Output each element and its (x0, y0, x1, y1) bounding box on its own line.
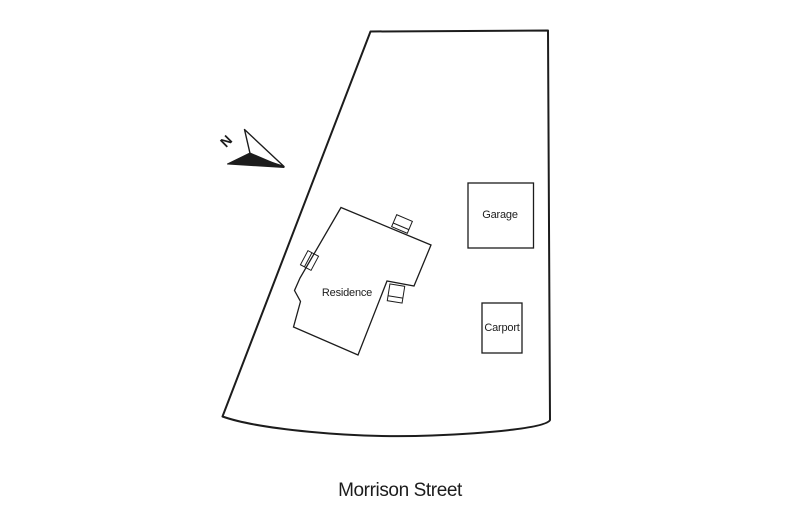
site-plan: N Residence Garage Carport Morrison Stre… (0, 0, 790, 527)
residence-outline (294, 208, 432, 356)
north-arrow-icon (228, 130, 285, 168)
residence-label: Residence (322, 287, 372, 299)
site-plan-drawing (0, 0, 790, 527)
chimney-right-icon (387, 284, 404, 303)
carport-label: Carport (484, 322, 519, 334)
garage-label: Garage (482, 209, 518, 221)
street-label: Morrison Street (338, 480, 462, 502)
